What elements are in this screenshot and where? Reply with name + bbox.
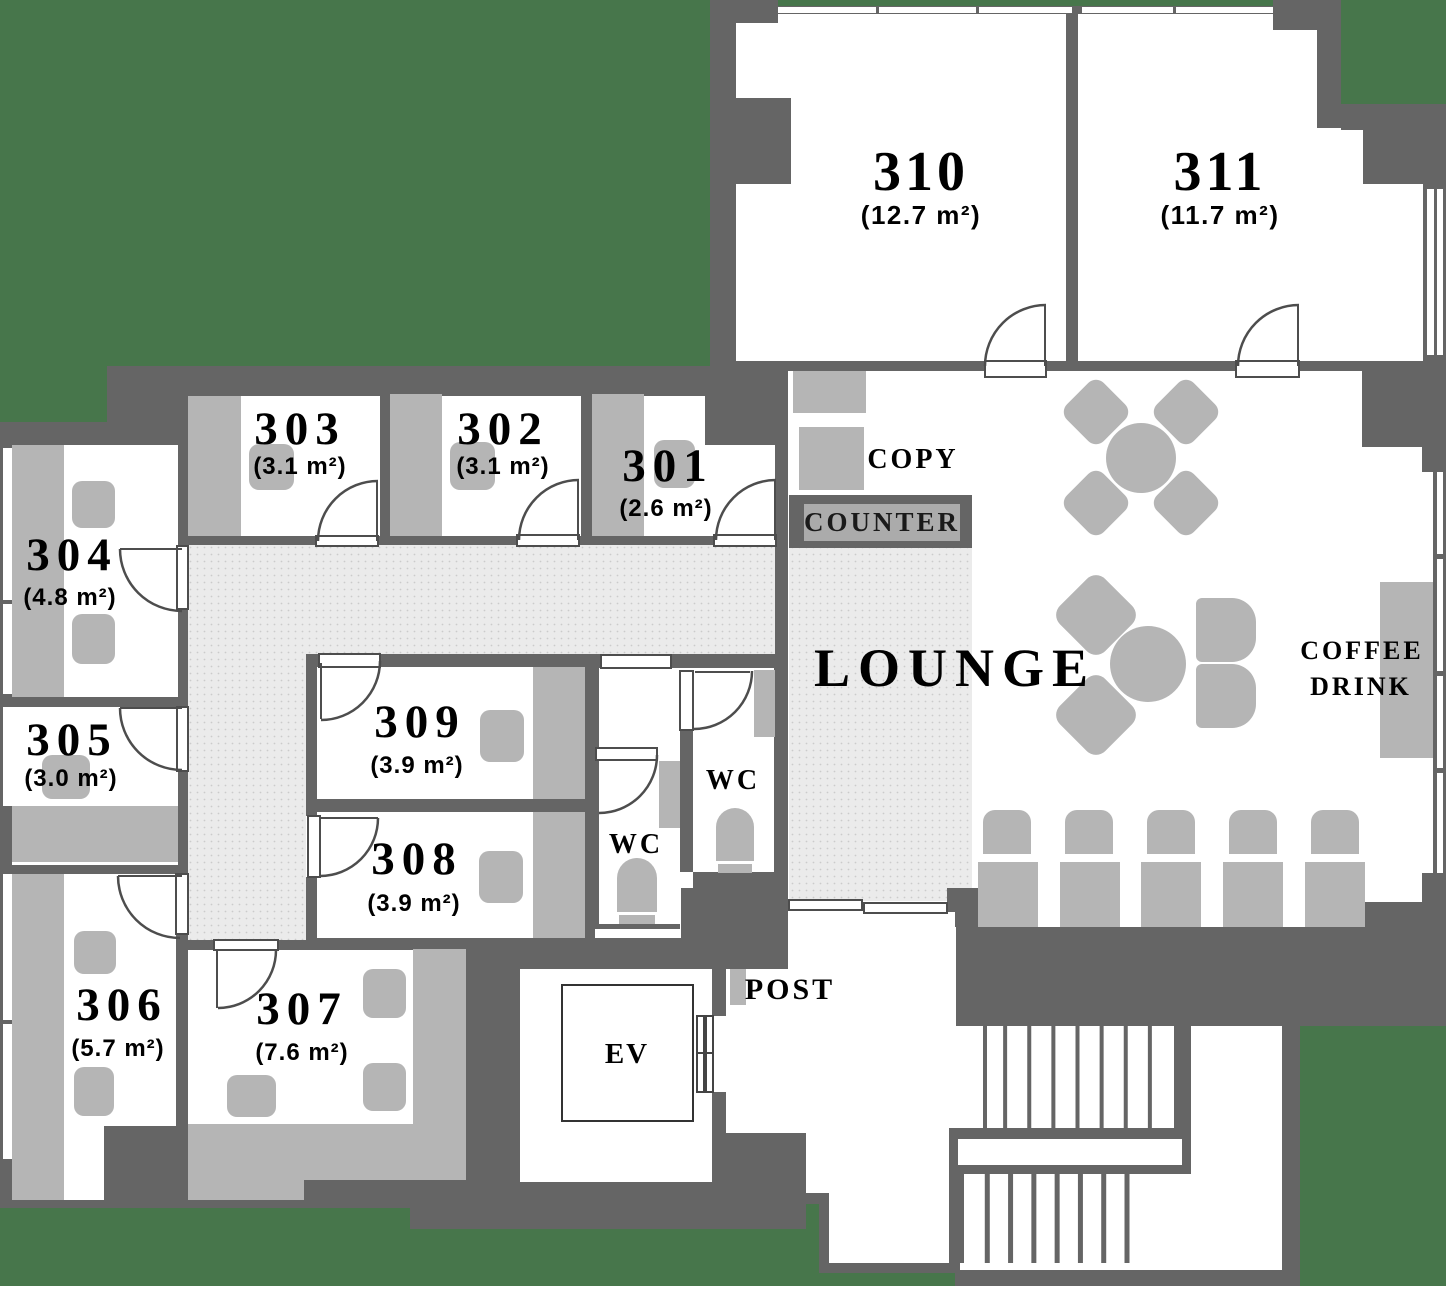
svg-text:COFFEE: COFFEE bbox=[1300, 636, 1423, 665]
svg-text:COUNTER: COUNTER bbox=[804, 507, 960, 537]
svg-text:DRINK: DRINK bbox=[1310, 672, 1412, 701]
svg-text:LOUNGE: LOUNGE bbox=[814, 638, 1096, 698]
svg-text:(3.9 m²): (3.9 m²) bbox=[370, 752, 463, 779]
svg-text:(2.6 m²): (2.6 m²) bbox=[619, 495, 712, 522]
svg-text:(12.7 m²): (12.7 m²) bbox=[861, 200, 981, 230]
svg-text:302: 302 bbox=[457, 403, 549, 455]
svg-text:(3.0 m²): (3.0 m²) bbox=[24, 765, 117, 792]
svg-text:304: 304 bbox=[26, 529, 118, 581]
svg-text:(3.9 m²): (3.9 m²) bbox=[367, 890, 460, 917]
svg-text:POST: POST bbox=[745, 973, 835, 1006]
svg-text:309: 309 bbox=[374, 696, 466, 748]
svg-text:(4.8 m²): (4.8 m²) bbox=[23, 584, 116, 611]
svg-text:(5.7 m²): (5.7 m²) bbox=[71, 1035, 164, 1062]
svg-text:(3.1 m²): (3.1 m²) bbox=[253, 453, 346, 480]
svg-text:311: 311 bbox=[1174, 141, 1267, 203]
svg-text:305: 305 bbox=[26, 714, 118, 766]
svg-text:308: 308 bbox=[371, 833, 463, 885]
svg-text:(7.6 m²): (7.6 m²) bbox=[255, 1039, 348, 1066]
svg-text:(11.7 m²): (11.7 m²) bbox=[1161, 200, 1280, 230]
svg-text:306: 306 bbox=[76, 979, 168, 1031]
svg-text:COPY: COPY bbox=[867, 444, 958, 475]
svg-text:310: 310 bbox=[873, 141, 969, 203]
svg-text:EV: EV bbox=[605, 1038, 649, 1070]
svg-text:WC: WC bbox=[706, 765, 760, 796]
svg-text:301: 301 bbox=[622, 440, 714, 492]
svg-text:(3.1 m²): (3.1 m²) bbox=[456, 453, 549, 480]
svg-text:303: 303 bbox=[254, 403, 346, 455]
svg-text:WC: WC bbox=[609, 829, 663, 860]
svg-text:307: 307 bbox=[256, 983, 348, 1035]
